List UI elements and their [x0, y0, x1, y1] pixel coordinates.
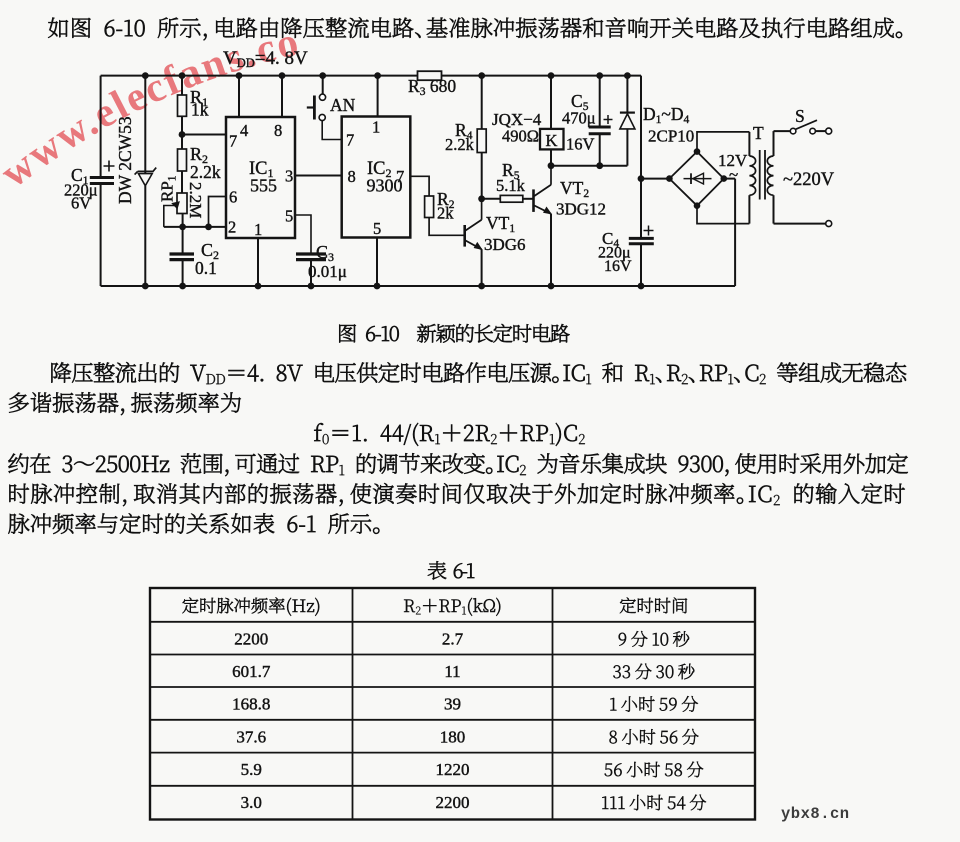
svg-text:3.0: 3.0	[241, 793, 262, 812]
svg-text:2200: 2200	[234, 630, 268, 649]
svg-text:VT1​: VT1​	[486, 213, 515, 235]
svg-text:5: 5	[285, 207, 293, 226]
svg-text:490Ω: 490Ω	[502, 127, 539, 146]
svg-text:39: 39	[444, 695, 461, 714]
svg-text:168.8: 168.8	[232, 695, 270, 714]
svg-text:601.7: 601.7	[232, 662, 271, 681]
svg-text:5: 5	[373, 219, 381, 238]
svg-text:~220V: ~220V	[783, 170, 835, 190]
svg-text:K: K	[546, 131, 558, 150]
svg-text:3: 3	[285, 167, 293, 186]
svg-text:5.9: 5.9	[241, 760, 262, 779]
svg-text:T: T	[753, 123, 764, 143]
svg-text:DW 2CW53: DW 2CW53	[115, 116, 135, 204]
svg-text:VDD​=4. 8V: VDD​=4. 8V	[223, 48, 308, 70]
svg-text:3DG6: 3DG6	[484, 235, 526, 254]
svg-text:R3​ 680: R3​ 680	[408, 76, 456, 98]
svg-text:1220: 1220	[436, 760, 470, 779]
svg-text:9300: 9300	[367, 176, 403, 196]
svg-text:~: ~	[729, 165, 738, 184]
svg-text:555: 555	[250, 176, 277, 196]
svg-text:7: 7	[229, 132, 237, 151]
svg-text:AN: AN	[330, 95, 356, 115]
svg-text:6V: 6V	[71, 194, 91, 213]
svg-text:1: 1	[254, 220, 262, 239]
svg-text:2k: 2k	[437, 204, 454, 223]
svg-text:1k: 1k	[191, 100, 209, 120]
svg-text:16V: 16V	[566, 135, 595, 154]
svg-text:7: 7	[346, 131, 354, 150]
svg-text:4: 4	[240, 121, 248, 140]
svg-text:2: 2	[228, 218, 236, 237]
svg-text:11: 11	[444, 662, 460, 681]
svg-text:2200: 2200	[436, 793, 470, 812]
svg-text:5.1k: 5.1k	[496, 176, 526, 195]
svg-text:VT2​: VT2​	[560, 178, 589, 200]
svg-text:0.1: 0.1	[195, 258, 217, 278]
svg-text:S: S	[795, 106, 805, 126]
svg-text:470μ: 470μ	[562, 109, 596, 128]
svg-text:2.7: 2.7	[442, 630, 464, 649]
svg-text:ybx8.cn: ybx8.cn	[781, 805, 850, 823]
svg-text:0.01μ: 0.01μ	[308, 262, 347, 281]
svg-text:3DG12: 3DG12	[556, 200, 606, 219]
svg-text:2.2k: 2.2k	[445, 135, 475, 154]
svg-text:1: 1	[372, 118, 380, 137]
svg-text:2.2M: 2.2M	[186, 182, 205, 218]
svg-text:180: 180	[440, 727, 466, 746]
svg-text:8: 8	[348, 167, 356, 186]
svg-text:6: 6	[229, 188, 237, 207]
svg-text:C3​: C3​	[316, 242, 334, 264]
svg-text:2.2k: 2.2k	[190, 162, 221, 182]
svg-text:37.6: 37.6	[236, 727, 266, 746]
svg-text:2CP10: 2CP10	[648, 127, 694, 146]
svg-text:RP1: RP1	[158, 175, 179, 202]
svg-text:8: 8	[274, 121, 282, 140]
svg-text:16V: 16V	[604, 258, 632, 275]
svg-text:D1​~D4​: D1​~D4​	[643, 104, 690, 126]
